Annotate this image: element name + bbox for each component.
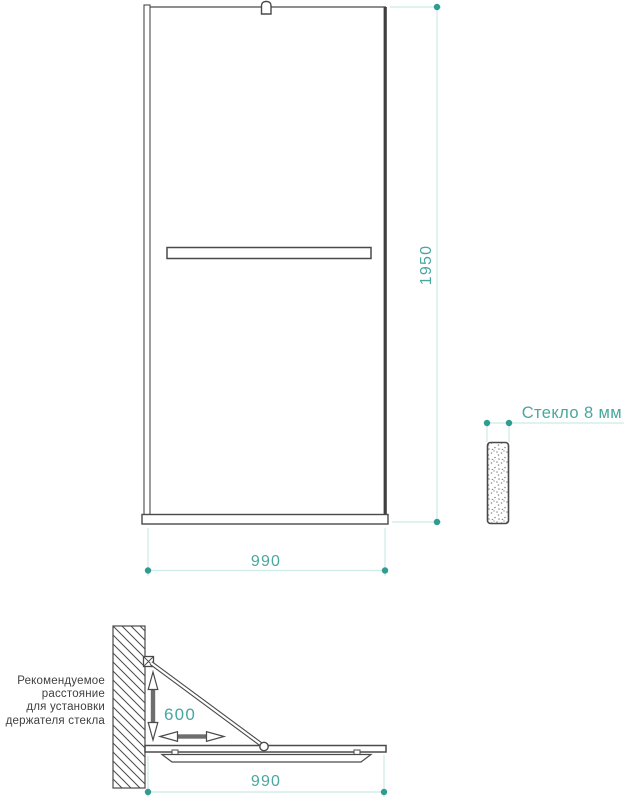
horizontal-double-arrow-icon: [160, 732, 224, 742]
dimension-dot: [434, 4, 440, 10]
dimension-dot: [145, 789, 151, 795]
note-line: расстояние: [0, 688, 105, 701]
dimension-dot: [145, 567, 151, 573]
dimension-dot: [382, 567, 388, 573]
note-line: Рекомендуемое: [0, 675, 105, 688]
glass-holder-knuckle: [260, 742, 268, 750]
note-line: для установки: [0, 701, 105, 714]
vertical-double-arrow-icon: [148, 672, 158, 740]
dimension-dot: [506, 420, 512, 426]
front-width-dimension-label: 990: [251, 553, 281, 571]
bottom-seal-profile: [162, 755, 371, 763]
note-line: держателя стекла: [0, 715, 105, 728]
dimension-dot: [484, 420, 490, 426]
shower-screen-technical-drawing: 1950 990 Стекло 8 мм 600 990 Рекомендуем…: [0, 0, 624, 800]
holder-recommendation-note: Рекомендуемое расстояние для установки д…: [0, 675, 105, 728]
dimension-dot: [381, 789, 387, 795]
wall-hatched: [113, 626, 145, 788]
towel-rail: [167, 248, 371, 259]
glass-panel-front-view: [142, 2, 388, 525]
height-dimension-label: 1950: [418, 245, 436, 285]
glass-thickness-label: Стекло 8 мм: [522, 404, 622, 423]
glass-cross-section: [488, 443, 509, 524]
plan-view: [113, 626, 386, 788]
wall-profile: [144, 5, 150, 515]
dimension-dot: [434, 519, 440, 525]
plan-width-dimension-label: 990: [251, 773, 281, 791]
holder-distance-dimension-label: 600: [164, 705, 196, 725]
bottom-profile: [142, 515, 388, 525]
top-mounting-clip: [262, 2, 272, 15]
